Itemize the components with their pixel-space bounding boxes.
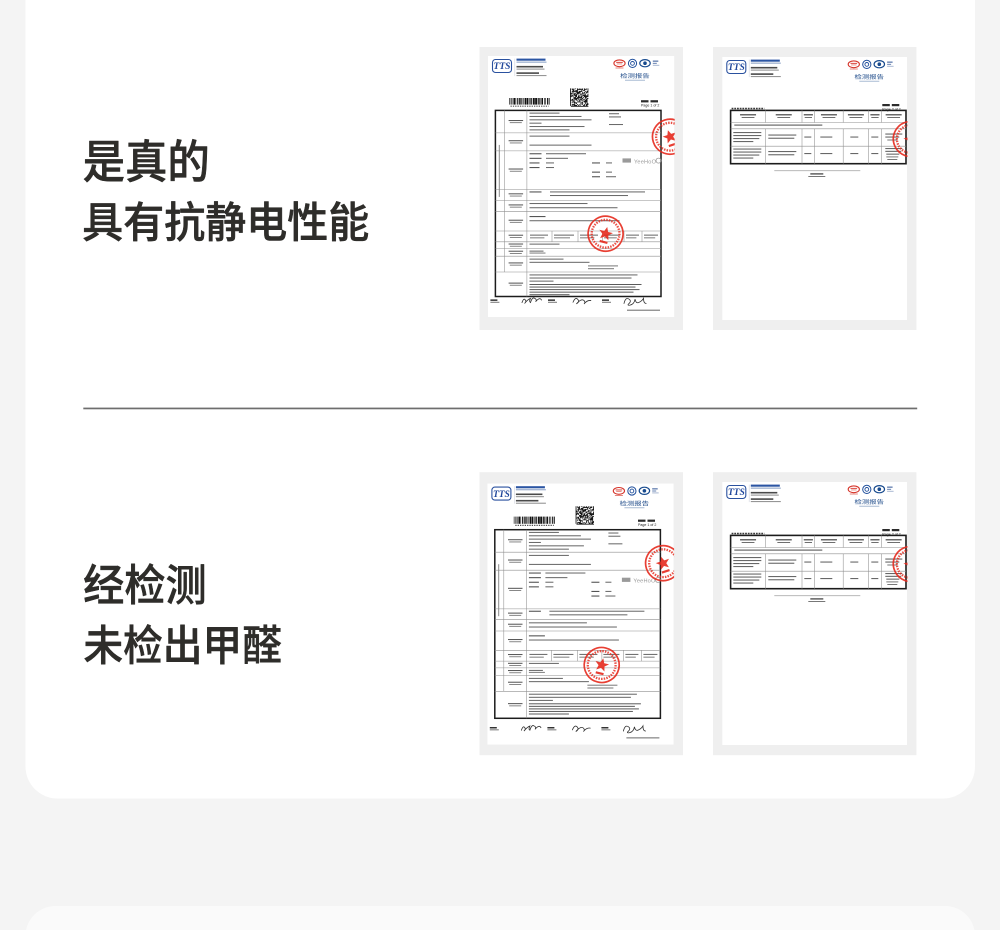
svg-text:YeeHoO: YeeHoO [633, 579, 656, 585]
svg-text:TTS: TTS [493, 490, 510, 500]
svg-text:TTS: TTS [728, 63, 745, 73]
svg-text:TTS: TTS [728, 488, 745, 498]
svg-text:Page 1 of 2: Page 1 of 2 [641, 104, 659, 108]
svg-text:TTS: TTS [494, 62, 511, 72]
svg-text:YeeHoO: YeeHoO [634, 159, 657, 165]
svg-text:Page 1 of 2: Page 1 of 2 [638, 523, 656, 527]
